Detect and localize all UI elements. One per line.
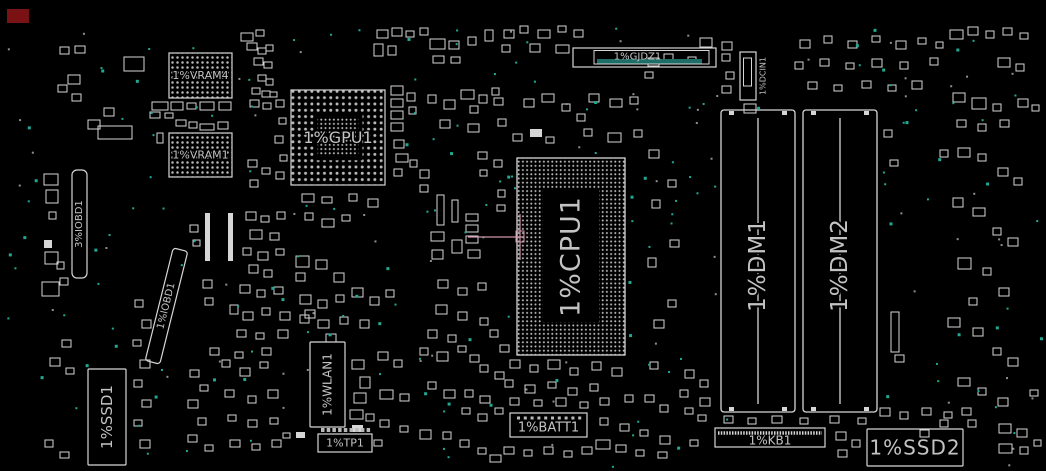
test-point — [757, 107, 760, 110]
test-point — [426, 211, 428, 213]
solder-speck — [553, 401, 555, 403]
test-point — [1013, 432, 1015, 434]
test-point — [996, 326, 999, 329]
test-point — [281, 298, 284, 301]
component-label-batt1: 1%BATT1 — [518, 421, 579, 436]
test-point — [112, 328, 114, 330]
test-point — [94, 249, 97, 252]
solder-speck — [525, 388, 527, 390]
test-point — [595, 152, 597, 154]
component-vram4[interactable]: 1%VRAM4 — [169, 53, 232, 98]
connector-pin — [571, 417, 574, 420]
solder-speck — [312, 312, 314, 314]
part-pad — [530, 129, 542, 137]
test-point — [9, 253, 12, 256]
test-point — [995, 406, 997, 408]
test-point — [355, 295, 358, 298]
solder-speck — [283, 373, 285, 375]
test-point — [612, 466, 614, 468]
test-point — [330, 34, 332, 36]
test-point — [526, 41, 528, 43]
solder-speck — [687, 35, 689, 37]
test-point — [696, 192, 698, 194]
test-point — [555, 379, 558, 382]
component-label-ssd2: 1%SSD2 — [869, 436, 960, 460]
solder-speck — [948, 402, 950, 404]
test-point — [100, 67, 102, 69]
test-point — [507, 176, 510, 179]
slot-tab — [782, 111, 787, 115]
test-point — [982, 119, 984, 121]
test-point — [448, 456, 450, 458]
test-point — [958, 333, 961, 336]
component-label-lcd: 1%GJDZ1 — [614, 52, 661, 63]
test-point — [251, 105, 253, 107]
test-point — [186, 450, 188, 452]
solder-speck — [1006, 377, 1008, 379]
test-point — [956, 49, 959, 52]
solder-speck — [636, 108, 638, 110]
test-point — [63, 314, 65, 316]
component-cpu1[interactable]: 1%CPU1 — [517, 158, 625, 355]
solder-speck — [905, 95, 907, 97]
connector-pin — [344, 428, 348, 432]
connector-pin — [578, 417, 581, 420]
solder-speck — [620, 40, 622, 42]
solder-speck — [632, 93, 634, 95]
test-point — [511, 176, 513, 178]
highlight-marker — [7, 9, 29, 23]
component-vram1[interactable]: 1%VRAM1 — [169, 133, 232, 177]
test-point — [394, 304, 396, 306]
test-point — [115, 345, 118, 348]
test-point — [508, 316, 510, 318]
solder-speck — [714, 256, 716, 258]
test-point — [297, 255, 299, 257]
solder-speck — [219, 361, 221, 363]
component-label-dcin1: 1%DCIN1 — [759, 57, 768, 95]
solder-speck — [374, 240, 376, 242]
test-point — [101, 69, 104, 72]
test-point — [86, 364, 89, 367]
test-point — [151, 112, 153, 114]
test-point — [468, 338, 471, 341]
solder-speck — [1001, 244, 1003, 246]
test-point — [306, 205, 308, 207]
solder-speck — [656, 180, 658, 182]
test-point — [419, 358, 421, 360]
connector-pin — [338, 428, 342, 432]
solder-speck — [307, 369, 309, 371]
solder-speck — [655, 343, 657, 345]
test-point — [358, 29, 360, 31]
test-point — [35, 179, 38, 182]
test-point — [873, 29, 876, 32]
test-point — [671, 222, 673, 224]
component-label-wlan1: 1%WLAN1 — [321, 353, 335, 416]
solder-speck — [905, 77, 907, 79]
test-point — [631, 220, 633, 222]
solder-speck — [19, 185, 21, 187]
connector-pin — [551, 417, 554, 420]
test-point — [886, 395, 889, 398]
test-point — [668, 371, 670, 373]
test-point — [726, 419, 728, 421]
component-label-tp1: 1%TP1 — [326, 437, 364, 450]
test-point — [457, 125, 459, 127]
test-point — [680, 358, 682, 360]
test-point — [889, 222, 892, 225]
test-point — [978, 390, 980, 392]
test-point — [138, 425, 140, 427]
test-point — [196, 106, 198, 108]
test-point — [414, 78, 416, 80]
part-pad — [44, 240, 52, 248]
test-point — [342, 315, 344, 317]
solder-speck — [973, 193, 975, 195]
test-point — [884, 183, 886, 185]
test-point — [433, 138, 435, 140]
test-point — [973, 40, 975, 42]
slot-tab — [729, 407, 734, 411]
slot-tab — [811, 407, 816, 411]
test-point — [464, 231, 466, 233]
test-point — [456, 43, 458, 45]
test-point — [405, 143, 408, 146]
test-point — [631, 196, 634, 199]
slot-tab — [864, 111, 869, 115]
test-point — [161, 369, 163, 371]
component-label-kb1: 1%KB1 — [749, 434, 792, 448]
test-point — [648, 246, 650, 248]
test-point — [882, 69, 885, 72]
test-point — [936, 363, 938, 365]
test-point — [181, 264, 183, 266]
solder-speck — [1031, 397, 1033, 399]
test-point — [490, 404, 493, 407]
test-point — [109, 234, 111, 236]
solder-speck — [431, 355, 433, 357]
solder-speck — [966, 76, 968, 78]
solder-speck — [697, 109, 699, 111]
test-point — [675, 200, 677, 202]
solder-speck — [300, 51, 302, 53]
connector-pin — [332, 428, 336, 432]
connector-pin — [544, 417, 547, 420]
connector-pin — [524, 417, 527, 420]
test-point — [856, 44, 859, 47]
test-point — [249, 170, 251, 172]
part-pad — [205, 213, 210, 261]
test-point — [859, 64, 861, 66]
test-point — [250, 440, 252, 442]
component-label-dm2: 1%DM2 — [827, 218, 853, 312]
solder-speck — [293, 213, 295, 215]
test-point — [703, 103, 705, 105]
test-point — [938, 158, 941, 161]
test-point — [163, 208, 165, 210]
test-point — [883, 172, 885, 174]
test-point — [689, 176, 691, 178]
test-point — [450, 152, 453, 155]
solder-speck — [8, 48, 10, 50]
test-point — [1007, 308, 1009, 310]
solder-speck — [105, 247, 107, 249]
solder-speck — [1012, 448, 1014, 450]
test-point — [628, 281, 631, 284]
test-point — [1014, 95, 1016, 97]
solder-speck — [950, 85, 952, 87]
test-point — [594, 101, 597, 104]
solder-speck — [998, 238, 1000, 240]
connector-pin — [350, 428, 354, 432]
test-point — [648, 364, 650, 366]
solder-speck — [890, 42, 892, 44]
test-point — [644, 177, 647, 180]
test-point — [534, 81, 536, 83]
test-point — [329, 333, 332, 336]
solder-speck — [238, 78, 240, 80]
test-point — [903, 122, 905, 124]
test-point — [952, 102, 954, 104]
test-point — [499, 180, 501, 182]
test-point — [494, 73, 496, 75]
solder-speck — [957, 238, 959, 240]
test-point — [905, 121, 908, 124]
solder-speck — [900, 212, 902, 214]
test-point — [307, 331, 309, 333]
test-point — [1036, 220, 1038, 222]
test-point — [237, 305, 239, 307]
test-point — [7, 317, 9, 319]
solder-speck — [914, 290, 916, 292]
test-point — [132, 207, 134, 209]
solder-speck — [363, 214, 365, 216]
test-point — [75, 407, 77, 409]
test-point — [14, 267, 16, 269]
component-label-cpu1: 1%CPU1 — [556, 196, 587, 317]
test-point — [378, 322, 381, 325]
connector-pin — [355, 428, 359, 432]
solder-speck — [715, 293, 717, 295]
test-point — [632, 434, 634, 436]
test-point — [148, 48, 150, 50]
slot-tab — [811, 111, 816, 115]
solder-speck — [808, 59, 810, 61]
connector-pin — [558, 417, 561, 420]
test-point — [147, 453, 149, 455]
test-point — [28, 126, 31, 129]
connector-pin — [531, 417, 534, 420]
test-point — [443, 410, 445, 412]
test-point — [150, 176, 152, 178]
solder-speck — [696, 122, 698, 124]
solder-speck — [420, 360, 422, 362]
test-point — [211, 115, 213, 117]
test-point — [714, 186, 716, 188]
slot-tab — [864, 407, 869, 411]
test-point — [586, 108, 588, 110]
test-point — [271, 287, 274, 290]
boardview-app: 1%VRAM41%VRAM11%GPU11%CPU11%DM11%DM23%IO… — [0, 0, 1046, 471]
test-point — [41, 376, 44, 379]
test-point — [671, 213, 673, 215]
slot-tab — [729, 111, 734, 115]
test-point — [379, 373, 381, 375]
test-point — [251, 351, 253, 353]
component-gpu1[interactable]: 1%GPU1 — [291, 90, 385, 185]
test-point — [414, 112, 416, 114]
component-label-vram4: 1%VRAM4 — [172, 69, 228, 82]
test-point — [248, 79, 250, 81]
solder-speck — [711, 158, 713, 160]
solder-speck — [566, 103, 568, 105]
test-point — [1040, 337, 1043, 340]
solder-speck — [565, 361, 567, 363]
test-point — [194, 240, 196, 242]
solder-speck — [52, 309, 54, 311]
part-pad — [296, 432, 305, 438]
test-point — [672, 161, 674, 163]
component-label-iob-left: 3%IOBD1 — [74, 200, 85, 248]
test-point — [514, 187, 516, 189]
test-point — [121, 118, 123, 120]
test-point — [152, 134, 154, 136]
connector-pin — [565, 417, 568, 420]
solder-speck — [716, 95, 718, 97]
solder-speck — [166, 376, 168, 378]
part-pad — [228, 213, 233, 261]
test-point — [407, 38, 410, 41]
test-point — [23, 236, 26, 239]
test-point — [155, 396, 158, 399]
connector-pin — [361, 428, 365, 432]
connector-pin — [517, 417, 520, 420]
connector-pin — [367, 428, 371, 432]
test-point — [915, 109, 917, 111]
slot-tab — [782, 407, 787, 411]
test-point — [937, 380, 939, 382]
test-point — [629, 334, 632, 337]
component-label-ssd1: 1%SSD1 — [98, 385, 116, 449]
test-point — [293, 39, 295, 41]
test-point — [637, 421, 639, 423]
solder-speck — [19, 119, 21, 121]
solder-speck — [430, 260, 432, 262]
test-point — [192, 47, 194, 49]
test-point — [889, 84, 891, 86]
test-point — [434, 209, 436, 211]
component-label-gpu1: 1%GPU1 — [303, 128, 372, 147]
test-point — [424, 392, 427, 395]
solder-speck — [551, 444, 553, 446]
test-point — [443, 448, 445, 450]
test-point — [677, 447, 680, 450]
test-point — [136, 80, 139, 83]
test-point — [456, 29, 458, 31]
connector-pin — [537, 417, 540, 420]
test-point — [243, 378, 246, 381]
solder-speck — [510, 31, 512, 33]
test-point — [333, 208, 335, 210]
component-label-vram1: 1%VRAM1 — [172, 149, 228, 162]
solder-speck — [283, 407, 285, 409]
test-point — [689, 107, 691, 109]
test-point — [615, 28, 617, 30]
test-point — [927, 198, 929, 200]
board-canvas[interactable]: 1%VRAM41%VRAM11%GPU11%CPU11%DM11%DM23%IO… — [0, 0, 1046, 471]
connector-pin — [321, 428, 325, 432]
solder-speck — [1012, 73, 1014, 75]
test-point — [28, 200, 30, 202]
solder-speck — [578, 146, 580, 148]
component-label-dm1: 1%DM1 — [745, 218, 771, 312]
test-point — [386, 267, 389, 270]
solder-speck — [225, 284, 227, 286]
test-point — [515, 62, 517, 64]
solder-speck — [1008, 464, 1010, 466]
test-point — [213, 378, 216, 381]
test-point — [986, 183, 989, 186]
solder-speck — [254, 114, 256, 116]
test-point — [485, 204, 487, 206]
solder-speck — [32, 152, 34, 154]
connector-pin — [327, 428, 331, 432]
solder-speck — [83, 33, 85, 35]
test-point — [97, 283, 99, 285]
test-point — [448, 403, 451, 406]
